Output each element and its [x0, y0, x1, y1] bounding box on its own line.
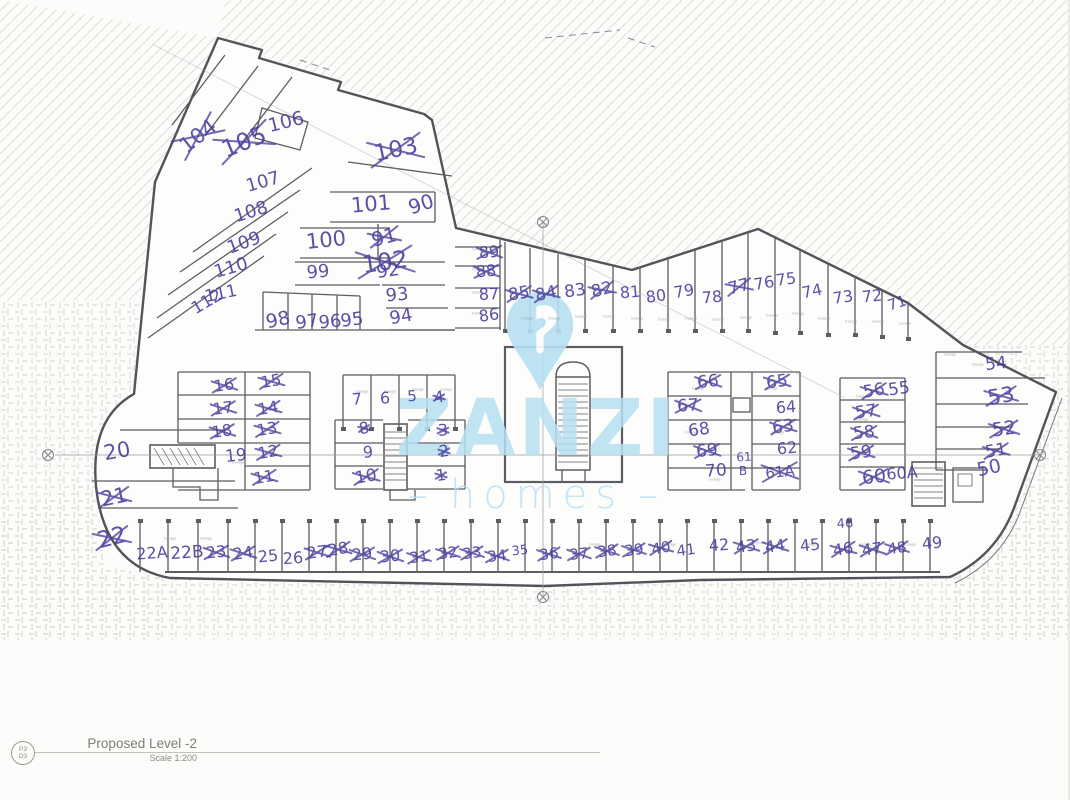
stall-label-68: 68 [687, 419, 711, 442]
stall-label-89: 89 [478, 242, 500, 263]
stall-label-32: 32 [437, 543, 458, 563]
stall-label-88: 88 [475, 261, 497, 282]
stall-label-62: 62 [776, 437, 798, 458]
stall-label-83: 83 [563, 280, 587, 303]
garage-tag: Garage [944, 353, 956, 357]
stall-label-61: 61 [736, 449, 752, 464]
stall-label-33: 33 [461, 543, 482, 563]
stall-label-14: 14 [256, 397, 279, 419]
stall-label-20: 20 [102, 437, 132, 465]
stall-label-58: 58 [852, 422, 876, 444]
stall-label-46: 46 [836, 516, 854, 532]
stall-label-48: 48 [886, 538, 907, 558]
stall-label-13: 13 [255, 418, 278, 440]
garage-tag: Garage [658, 318, 670, 322]
stall-label-46: 46 [831, 538, 854, 560]
stall-label-65: 65 [765, 371, 789, 394]
stall-label-15: 15 [259, 370, 282, 392]
garage-tag: Garage [972, 363, 984, 367]
garage-tag: Garage [766, 314, 778, 318]
stall-label-24: 24 [232, 542, 255, 564]
stall-label-11: 11 [252, 466, 275, 488]
stall-label-10: 10 [354, 465, 379, 488]
stall-label-31: 31 [408, 547, 429, 567]
stall-label-63: 63 [771, 416, 795, 439]
stall-label-39: 39 [623, 540, 644, 560]
stall-label-16: 16 [213, 374, 236, 396]
stall-label-76: 76 [752, 272, 775, 294]
garage-tag: Garage [872, 320, 884, 324]
stall-label-67: 67 [677, 395, 700, 416]
stall-label-28: 28 [326, 538, 349, 560]
stall-label-12: 12 [256, 441, 279, 463]
stall-label-52: 52 [990, 416, 1017, 441]
garage-tag: Garage [712, 318, 724, 322]
stall-label-93: 93 [385, 284, 410, 307]
stall-label-78: 78 [701, 287, 723, 308]
stall-label-7: 7 [351, 389, 362, 409]
stall-label-19: 19 [224, 445, 248, 467]
stall-label-64: 64 [775, 397, 797, 417]
stall-label-100: 100 [305, 226, 347, 254]
stall-label-22B: 22B [170, 542, 205, 564]
stall-label-81: 81 [619, 282, 641, 303]
stall-label-79: 79 [672, 280, 695, 302]
title-block: P3 D3 Proposed Level -2 Scale 1:200 [0, 732, 640, 782]
stall-label-49: 49 [921, 532, 943, 553]
garage-tag: Garage [792, 312, 804, 316]
stall-label-56: 56 [862, 379, 887, 402]
stall-label-47: 47 [861, 538, 884, 560]
stall-label-94: 94 [388, 305, 414, 330]
stall-label-6: 6 [380, 388, 391, 407]
stall-label-18: 18 [211, 420, 234, 442]
stall-label-23: 23 [205, 541, 227, 562]
stall-label-26: 26 [282, 548, 304, 568]
stall-label-99: 99 [306, 261, 331, 284]
stall-label-29: 29 [351, 543, 373, 564]
stall-label-38: 38 [596, 541, 617, 561]
stall-label-30: 30 [379, 545, 401, 566]
stall-label-55: 55 [887, 378, 911, 401]
garage-tag: Garage [845, 320, 857, 324]
stall-label-37: 37 [569, 544, 590, 564]
stall-label-36: 36 [538, 544, 559, 564]
drawing-scale: Scale 1:200 [0, 753, 197, 763]
stall-label-34: 34 [487, 546, 508, 566]
stall-label-B: B [739, 464, 747, 478]
stall-label-59: 59 [849, 442, 873, 465]
garage-tag: Garage [521, 317, 533, 321]
garage-tag: Garage [899, 322, 911, 326]
stall-label-5: 5 [407, 387, 418, 406]
stall-label-70: 70 [705, 460, 728, 481]
garage-tag: Garage [631, 317, 643, 321]
stall-label-53: 53 [986, 382, 1016, 410]
stall-label-95: 95 [339, 308, 365, 332]
stall-label-9: 9 [362, 442, 373, 462]
stall-label-41: 41 [675, 540, 696, 560]
stall-label-44: 44 [764, 535, 787, 557]
stall-label-54: 54 [984, 353, 1008, 375]
stall-label-92: 92 [375, 259, 401, 283]
stall-label-42: 42 [708, 535, 730, 555]
stall-label-17: 17 [212, 397, 235, 419]
stall-label-73: 73 [832, 286, 855, 308]
stall-label-22A: 22A [136, 542, 169, 563]
garage-tag: Garage [200, 537, 212, 541]
stall-label-35: 35 [511, 543, 529, 560]
stall-label-45: 45 [799, 534, 821, 555]
stall-label-86: 86 [478, 304, 501, 326]
garage-tag: Garage [818, 317, 830, 321]
garage-tag: Garage [603, 315, 615, 319]
stall-label-80: 80 [645, 285, 668, 307]
stall-label-3: 3 [437, 420, 448, 440]
stall-label-60: 60 [861, 465, 887, 489]
stall-label-43: 43 [735, 535, 758, 557]
garage-tag: Garage [575, 315, 587, 319]
stall-label-66: 66 [696, 371, 720, 393]
stall-label-85: 85 [507, 282, 532, 305]
stall-label-75: 75 [775, 268, 798, 290]
garage-tag: Garage [685, 317, 697, 321]
drawing-title: Proposed Level -2 [0, 736, 197, 751]
garage-tag: Garage [164, 537, 176, 541]
stall-label-69: 69 [695, 440, 719, 462]
stall-label-57: 57 [854, 401, 878, 424]
stall-label-101: 101 [350, 190, 392, 217]
stall-label-40: 40 [650, 537, 672, 558]
floor-plan-drawing [0, 0, 1070, 800]
garage-tag: Garage [740, 316, 752, 320]
garage-tag: Garage [548, 317, 560, 321]
stall-label-97: 97 [294, 310, 320, 334]
stall-label-25: 25 [257, 545, 279, 566]
stall-label-72: 72 [861, 285, 883, 306]
stall-label-60A: 60A [886, 462, 919, 483]
stall-label-87: 87 [478, 284, 499, 304]
stall-label-61A: 61A [764, 462, 795, 483]
